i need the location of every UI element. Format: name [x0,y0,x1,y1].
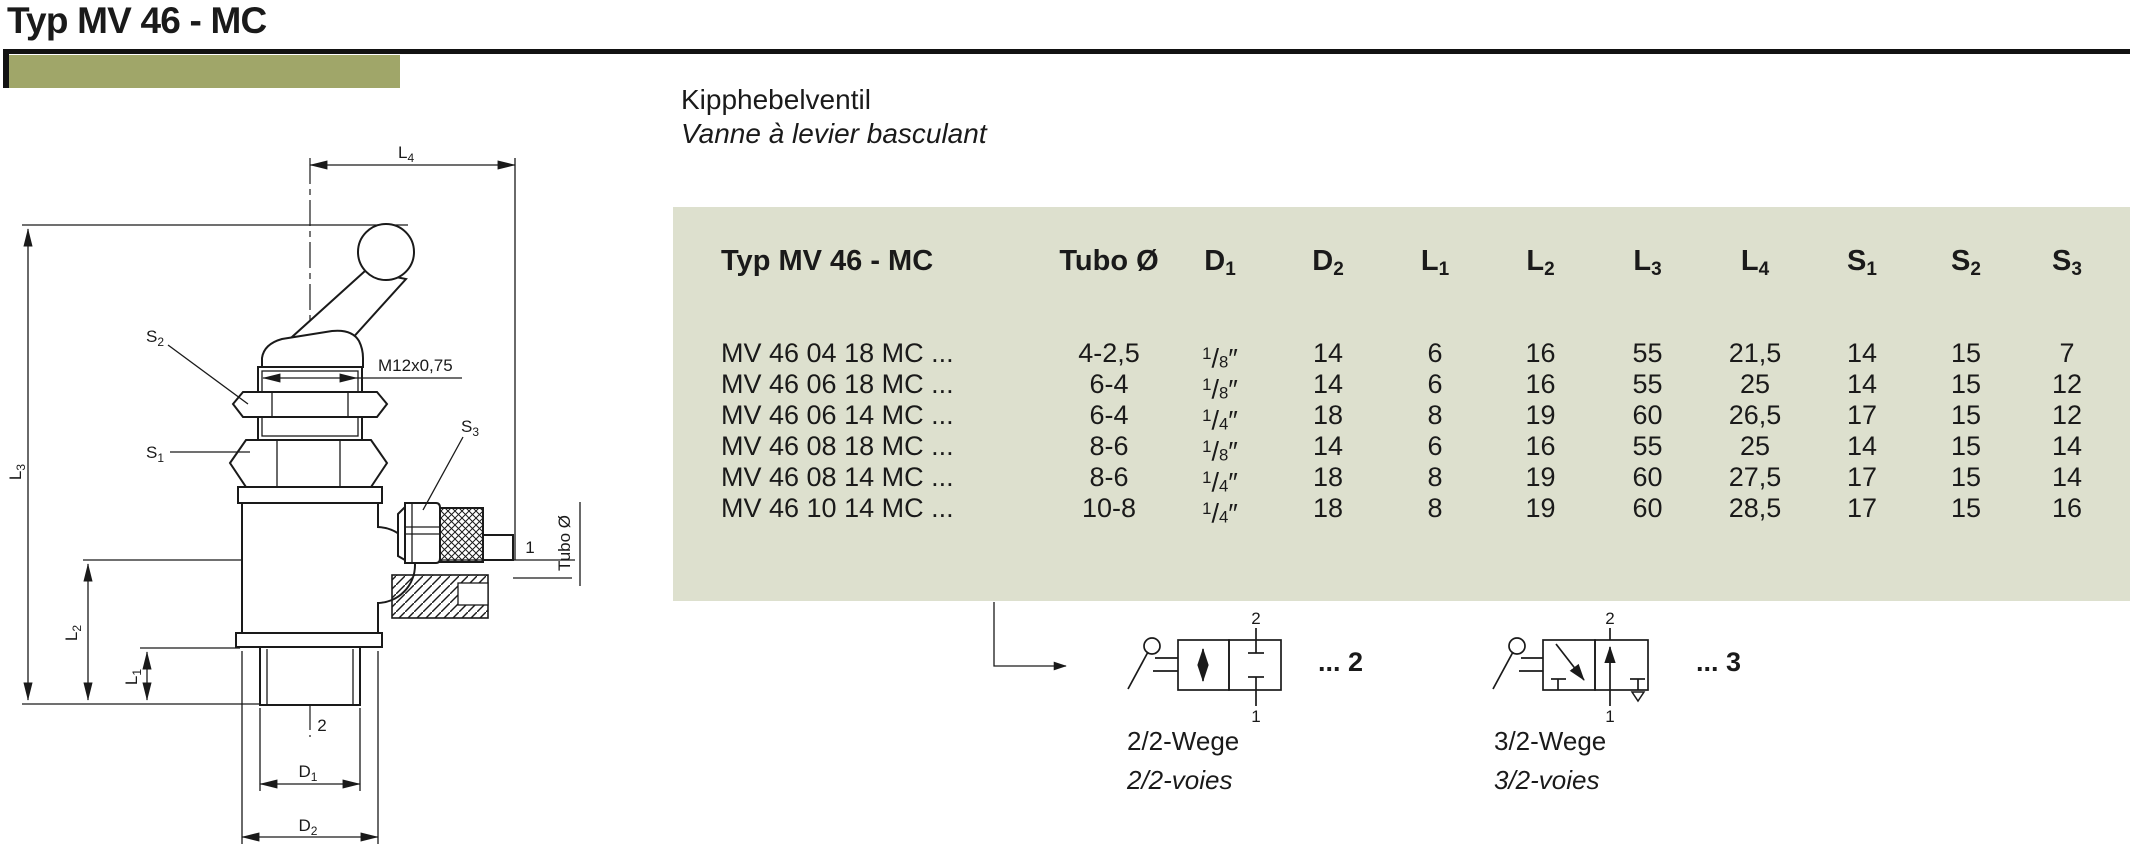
symbol22-label-fr: 2/2-voies [1127,765,1233,796]
dim-label-d1: D1 [299,762,318,784]
hex-nut-s1 [230,440,387,487]
spec-table-header: Typ MV 46 - MCTubo ØD1D2L1L2L3L4S1S2S3 [721,245,2117,278]
fitting-connector [398,507,405,560]
table-row: MV 46 10 14 MC ...10-81/4″188196028,5171… [721,493,2117,524]
jam-nut-s2 [233,392,387,417]
table-header-title: Typ MV 46 - MC [721,245,1051,278]
table-header-cell: S2 [1915,245,2017,278]
body-collar [238,487,382,503]
fitting-nut-s3 [405,503,440,563]
section-notch [458,583,488,605]
dim-label-s1: S1 [146,443,164,465]
table-cell-l3: 60 [1594,493,1701,533]
dim-label-m12: M12x0,75 [378,356,453,375]
dim-label-l3: L3 [6,464,28,480]
symbol32-label-de: 3/2-Wege [1494,726,1606,757]
table-row: MV 46 08 14 MC ...8-61/4″188196027,51715… [721,462,2117,493]
port-label-2: 2 [317,716,326,735]
exhaust-triangle-icon [1632,692,1644,701]
diagonal-flow-arrow [1556,644,1584,680]
symbol-3-2-way: 2 1 [1493,609,1648,726]
technical-drawing: L4 L3 L2 L1 S2 S1 S3 M12x0,75 D1 D2 2 1 … [0,90,660,851]
side-fitting [392,502,580,618]
s3-leader [423,437,463,510]
dim-label-s3: S3 [461,417,479,439]
page-title: Typ MV 46 - MC [7,0,266,42]
table-header-cell: L1 [1383,245,1487,278]
title-rule [3,49,2130,54]
spec-table: Typ MV 46 - MCTubo ØD1D2L1L2L3L4S1S2S3 M… [673,207,2130,601]
table-header-cell: L4 [1701,245,1809,278]
dim-label-s2: S2 [146,327,164,349]
symbol32-suffix: ... 3 [1696,647,1741,678]
table-header-cell: S1 [1809,245,1915,278]
symbol22-label-de: 2/2-Wege [1127,726,1239,757]
lever-slash [1493,652,1513,689]
table-cell-l1: 8 [1383,493,1487,533]
knurled-sleeve [440,508,483,562]
valve-body [230,224,462,705]
table-row: MV 46 06 18 MC ...6-41/8″146165525141512 [721,369,2117,400]
fitting-end-collar [483,535,513,560]
port-label-1: 1 [525,538,534,557]
spec-table-body: MV 46 04 18 MC ...4-2,51/8″146165521,514… [721,338,2117,524]
lever-knob-icon [1509,638,1525,654]
table-row: MV 46 06 14 MC ...6-41/4″188196026,51715… [721,400,2117,431]
symbol-box-cross [1543,640,1595,690]
table-cell-code: MV 46 10 14 MC ... [721,493,1051,533]
body-cylinder [242,503,378,633]
table-header-cell: L3 [1594,245,1701,278]
symbol-box-flow [1595,640,1648,690]
symbol32-label-fr: 3/2-voies [1494,765,1600,796]
subtitle-german: Kipphebelventil [681,84,871,116]
table-header-cell: D1 [1167,245,1273,278]
dim-label-l2: L2 [62,625,84,641]
lever-boot [262,331,363,367]
symbol-box-closed [1229,640,1281,690]
table-header-cell: Tubo Ø [1051,245,1167,278]
table-row: MV 46 08 18 MC ...8-61/8″146165525141514 [721,431,2117,462]
symbol22-port1-label: 1 [1251,707,1260,726]
symbol22-suffix: ... 2 [1318,647,1363,678]
dim-label-d2: D2 [299,816,318,838]
table-header-cell: S3 [2017,245,2117,278]
table-header-cell: L2 [1487,245,1594,278]
s2-leader [168,345,248,404]
table-cell-d2: 18 [1273,493,1383,533]
table-cell-s2: 15 [1915,493,2017,533]
symbol-2-2-way: 2 1 [1128,609,1281,726]
lever-ball [358,224,414,280]
thread-stub [260,647,360,705]
table-cell-tubo: 10-8 [1051,493,1167,533]
subtitle-french: Vanne à levier basculant [681,118,987,150]
symbol32-port2-label: 2 [1605,609,1614,628]
table-cell-s3: 16 [2017,493,2117,533]
symbol22-port2-label: 2 [1251,609,1260,628]
accent-bar [9,55,400,88]
table-header-cell: D2 [1273,245,1383,278]
lever-slash [1128,652,1148,689]
catalog-page: { "page": { "title": "Typ MV 46 - MC" },… [0,0,2130,851]
table-cell-l2: 19 [1487,493,1594,533]
lever-knob-icon [1144,638,1160,654]
table-cell-s1: 17 [1809,493,1915,533]
dim-label-l4: L4 [398,143,414,165]
table-to-symbol-arrow [994,602,1066,666]
table-row: MV 46 04 18 MC ...4-2,51/8″146165521,514… [721,338,2117,369]
symbol32-port1-label: 1 [1605,707,1614,726]
bottom-flange [236,633,382,647]
tubo-label: Tubo Ø [555,515,574,571]
dim-label-l1: L1 [122,669,144,685]
table-cell-l4: 28,5 [1701,493,1809,533]
table-cell-d1: 1/4″ [1167,493,1273,533]
